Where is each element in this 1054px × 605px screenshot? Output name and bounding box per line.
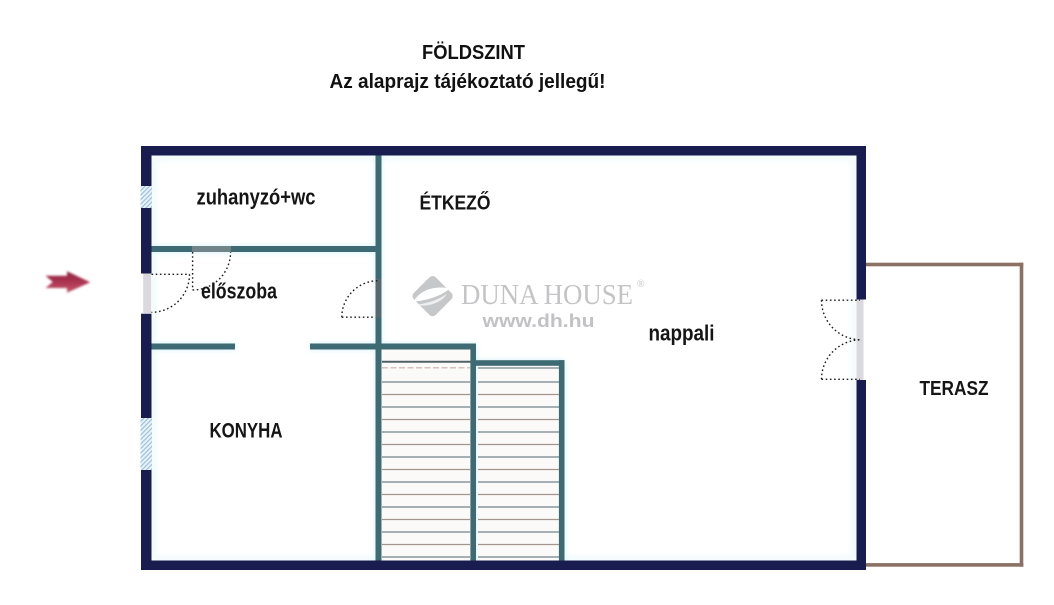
svg-text:FÖLDSZINT: FÖLDSZINT [422, 41, 525, 64]
svg-text:zuhanyzó+wc: zuhanyzó+wc [197, 185, 316, 210]
svg-text:TERASZ: TERASZ [920, 378, 989, 400]
svg-text:KONYHA: KONYHA [210, 420, 283, 443]
svg-text:Az alaprajz tájékoztató jelleg: Az alaprajz tájékoztató jellegű! [330, 71, 606, 93]
svg-text:ÉTKEZŐ: ÉTKEZŐ [420, 192, 491, 215]
svg-text:előszoba: előszoba [201, 279, 278, 304]
svg-text:DUNA HOUSE: DUNA HOUSE [461, 279, 633, 311]
svg-text:nappali: nappali [649, 321, 715, 346]
svg-text:www.dh.hu: www.dh.hu [481, 311, 594, 331]
svg-text:®: ® [637, 279, 645, 290]
